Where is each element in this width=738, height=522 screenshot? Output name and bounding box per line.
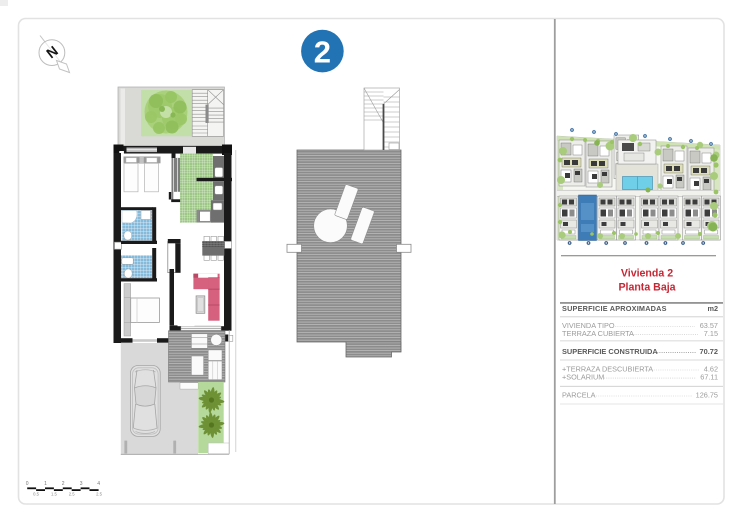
svg-text:SUPERFICIE APROXIMADAS: SUPERFICIE APROXIMADAS [562,304,667,313]
svg-text:m2: m2 [707,304,718,313]
svg-text:3: 3 [80,481,83,487]
svg-text:7.15: 7.15 [704,329,718,338]
svg-text:2.5: 2.5 [96,492,102,497]
svg-text:70.72: 70.72 [700,347,719,356]
svg-text:Vivienda 2: Vivienda 2 [621,268,673,280]
svg-text:2: 2 [314,35,331,70]
svg-text:0.5: 0.5 [33,492,39,497]
svg-text:2.5: 2.5 [69,492,75,497]
svg-text:1.5: 1.5 [51,492,57,497]
svg-text:+SOLARIUM: +SOLARIUM [562,373,604,382]
svg-text:0: 0 [26,481,29,487]
svg-text:PARCELA: PARCELA [562,391,596,400]
svg-text:2: 2 [62,481,65,487]
svg-text:1: 1 [44,481,47,487]
svg-text:67.11: 67.11 [700,373,718,382]
svg-text:SUPERFICIE CONSTRUIDA: SUPERFICIE CONSTRUIDA [562,347,658,356]
svg-text:TERRAZA CUBIERTA: TERRAZA CUBIERTA [562,329,634,338]
svg-text:126.75: 126.75 [696,391,718,400]
svg-text:Planta Baja: Planta Baja [618,282,675,294]
svg-text:4: 4 [97,481,100,487]
